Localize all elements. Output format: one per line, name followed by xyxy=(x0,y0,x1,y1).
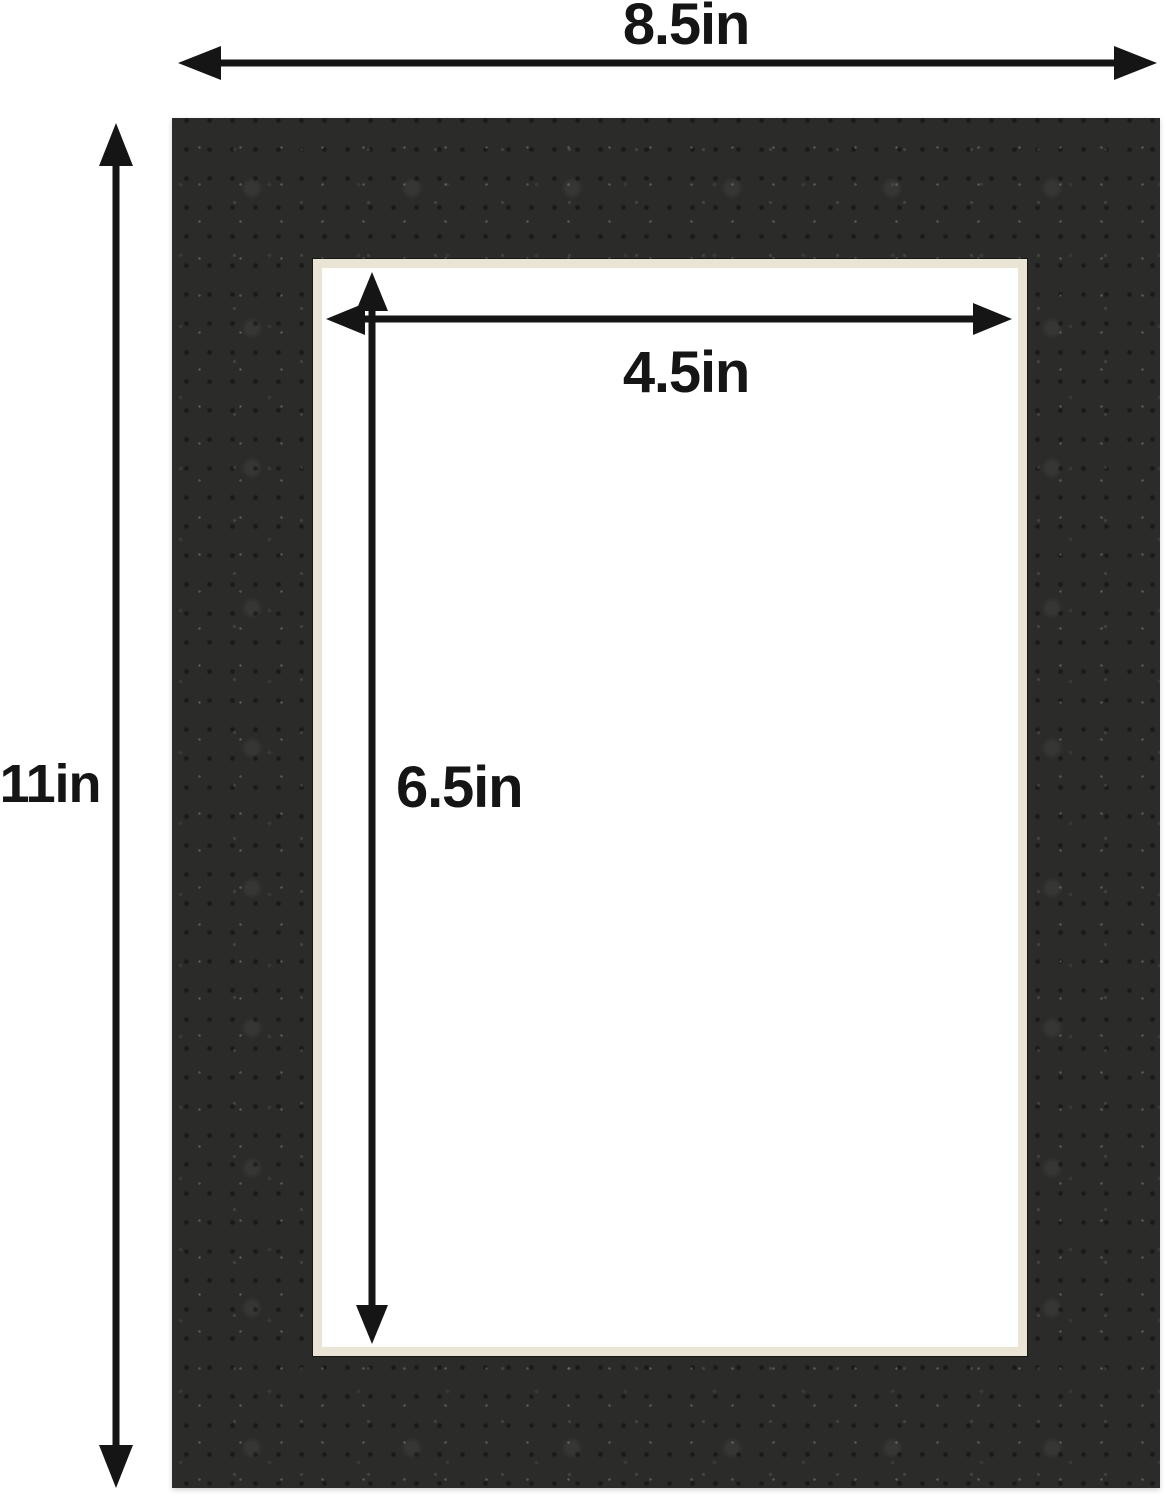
arrow-head-right xyxy=(1114,46,1157,80)
mat-board xyxy=(172,118,1160,1488)
mat-dimension-diagram: 8.5in 11in 4.5in 6.5in xyxy=(0,0,1166,1500)
outer-height-arrow xyxy=(99,123,133,1488)
arrow-head-left xyxy=(178,46,221,80)
opening-height-label: 6.5in xyxy=(396,757,546,819)
outer-width-label: 8.5in xyxy=(553,0,819,56)
outer-height-label: 11in xyxy=(0,755,102,813)
arrow-head-bottom xyxy=(99,1445,133,1488)
arrow-head-top xyxy=(99,123,133,166)
opening-width-label: 4.5in xyxy=(553,342,819,404)
